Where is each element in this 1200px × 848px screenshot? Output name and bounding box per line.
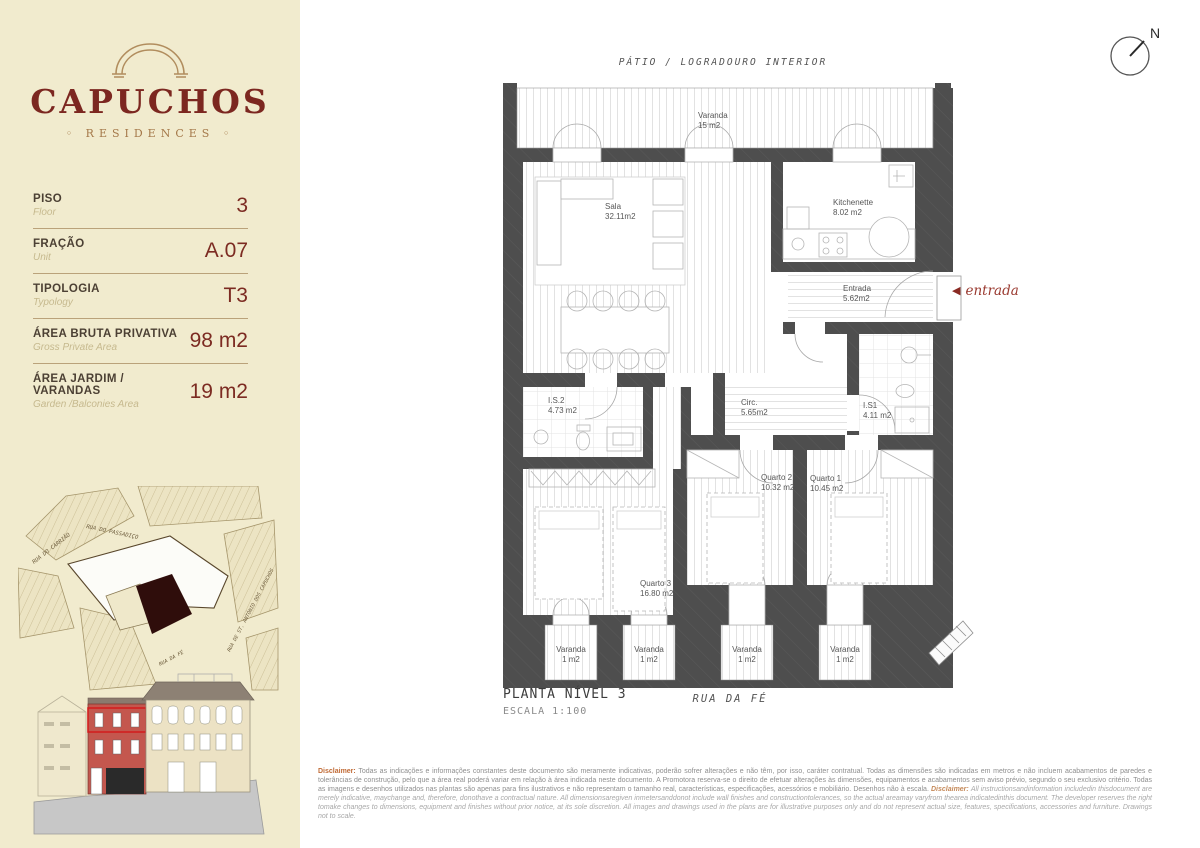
- room-label-quarto3: Quarto 316.80 m2: [640, 579, 673, 600]
- field-sublabel: Typology: [33, 297, 100, 308]
- floor-plan-drawing: [495, 55, 975, 735]
- field-label: ÁREA JARDIM / VARANDAS: [33, 373, 190, 397]
- field-sublabel: Gross Private Area: [33, 342, 177, 353]
- disclaimer-label-pt: Disclaimer:: [318, 768, 356, 775]
- compass-north-label: N: [1150, 25, 1160, 41]
- disclaimer: Disclaimer: Todas as indicações e inform…: [318, 768, 1152, 822]
- entrance-label: entrada: [965, 283, 1018, 299]
- entrance-arrow-icon: ◀: [952, 286, 960, 297]
- field-value: T3: [223, 284, 248, 308]
- field-piso: PISO Floor 3: [33, 184, 248, 229]
- field-sublabel: Floor: [33, 207, 62, 218]
- field-value: 3: [236, 194, 248, 218]
- field-label: PISO: [33, 193, 62, 205]
- field-area-jardim: ÁREA JARDIM / VARANDAS Garden /Balconies…: [33, 364, 248, 420]
- room-label-circ: Circ.5.65m2: [741, 398, 768, 419]
- plan-scale: ESCALA 1:100: [503, 706, 587, 717]
- room-label-entrada: Entrada5.62m2: [843, 284, 871, 305]
- brand-name: CAPUCHOS: [0, 82, 300, 121]
- field-label: FRAÇÃO: [33, 238, 85, 250]
- room-label-kitchenette: Kitchenette8.02 m2: [833, 198, 873, 219]
- location-map: RUA DO CARRIÃO RUA DO PASSADIÇO RUA DE S…: [18, 486, 282, 694]
- patio-label: PÁTIO / LOGRADOURO INTERIOR: [573, 57, 873, 68]
- room-label-sala: Sala32.11m2: [605, 202, 636, 223]
- room-label-varanda-3: Varanda1 m2: [721, 645, 773, 666]
- field-sublabel: Unit: [33, 252, 85, 263]
- disclaimer-label-en: Disclaimer:: [931, 786, 969, 793]
- room-label-is1: I.S14.11 m2: [863, 401, 891, 422]
- arch-icon: [102, 36, 198, 78]
- compass: N: [1103, 20, 1175, 82]
- field-value: 98 m2: [190, 329, 248, 353]
- map-street-label: RUA DA FÉ: [157, 648, 185, 668]
- room-label-varanda-1: Varanda1 m2: [545, 645, 597, 666]
- field-value: A.07: [205, 239, 248, 263]
- room-label-is2: I.S.24.73 m2: [548, 396, 577, 417]
- sidebar: CAPUCHOS ◦ RESIDENCES ◦ PISO Floor 3 FRA…: [0, 0, 300, 848]
- field-sublabel: Garden /Balconies Area: [33, 399, 190, 410]
- field-tipologia: TIPOLOGIA Typology T3: [33, 274, 248, 319]
- field-label: TIPOLOGIA: [33, 283, 100, 295]
- elevation-subject-building: [88, 698, 146, 794]
- plan-title: PLANTA NÍVEL 3: [503, 687, 627, 702]
- elevation-left-building: [38, 696, 86, 796]
- room-label-varanda-4: Varanda1 m2: [819, 645, 871, 666]
- brand-subtitle: ◦ RESIDENCES ◦: [0, 127, 300, 140]
- street-label-rua-da-fe: RUA DA FÉ: [655, 693, 805, 705]
- room-label-quarto1: Quarto 110.45 m2: [810, 474, 843, 495]
- room-label-quarto2: Quarto 210.32 m2: [761, 473, 794, 494]
- field-area-bruta: ÁREA BRUTA PRIVATIVA Gross Private Area …: [33, 319, 248, 364]
- field-fracao: FRAÇÃO Unit A.07: [33, 229, 248, 274]
- entrance-marker: ◀ entrada: [952, 283, 1019, 299]
- room-label-varanda-top: Varanda15 m2: [698, 111, 728, 132]
- floor-plan: PÁTIO / LOGRADOURO INTERIOR Varanda15 m2…: [495, 55, 975, 735]
- building-elevation: [28, 672, 272, 837]
- unit-info-fields: PISO Floor 3 FRAÇÃO Unit A.07 TIPOLOGIA …: [33, 184, 248, 420]
- room-label-varanda-2: Varanda1 m2: [623, 645, 675, 666]
- field-value: 19 m2: [190, 380, 248, 404]
- elevation-right-building: [142, 674, 254, 792]
- brand-logo: CAPUCHOS ◦ RESIDENCES ◦: [0, 36, 300, 140]
- field-label: ÁREA BRUTA PRIVATIVA: [33, 328, 177, 340]
